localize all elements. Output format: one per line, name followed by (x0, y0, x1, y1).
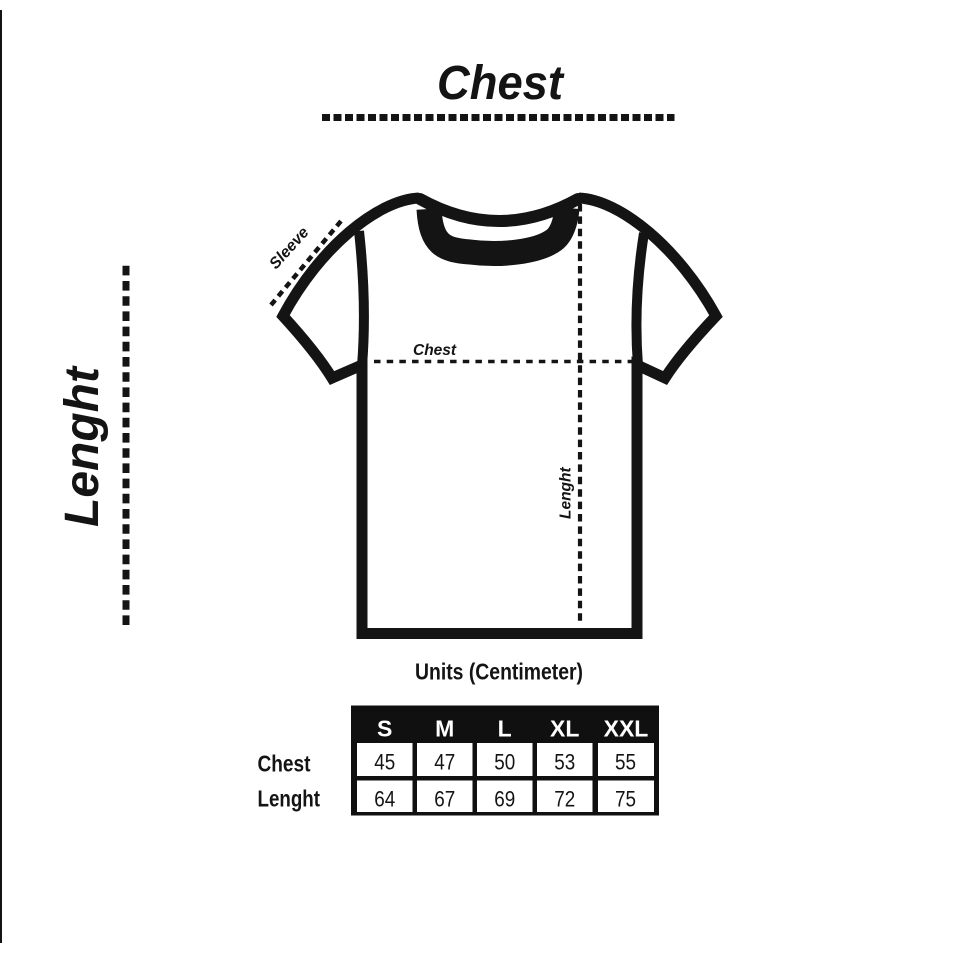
svg-text:XL: XL (550, 716, 579, 742)
svg-text:67: 67 (434, 787, 455, 812)
svg-text:Lenght: Lenght (558, 467, 575, 519)
svg-text:47: 47 (434, 750, 455, 775)
svg-text:Units (Centimeter): Units (Centimeter) (415, 659, 583, 685)
svg-text:Chest: Chest (258, 751, 311, 777)
svg-text:S: S (377, 716, 392, 742)
svg-text:XXL: XXL (604, 716, 649, 742)
svg-text:72: 72 (554, 787, 575, 812)
svg-text:75: 75 (615, 787, 636, 812)
svg-text:Lenght: Lenght (56, 365, 109, 527)
svg-text:L: L (498, 716, 512, 742)
svg-text:69: 69 (494, 787, 515, 812)
svg-text:Chest: Chest (437, 57, 565, 110)
svg-text:45: 45 (374, 750, 395, 775)
svg-text:53: 53 (554, 750, 575, 775)
svg-text:Lenght: Lenght (258, 786, 321, 812)
svg-text:M: M (435, 716, 454, 742)
svg-text:64: 64 (374, 787, 395, 812)
svg-text:50: 50 (494, 750, 515, 775)
svg-text:Chest: Chest (413, 342, 457, 359)
svg-text:55: 55 (615, 750, 636, 775)
svg-text:Sleeve: Sleeve (266, 224, 312, 273)
